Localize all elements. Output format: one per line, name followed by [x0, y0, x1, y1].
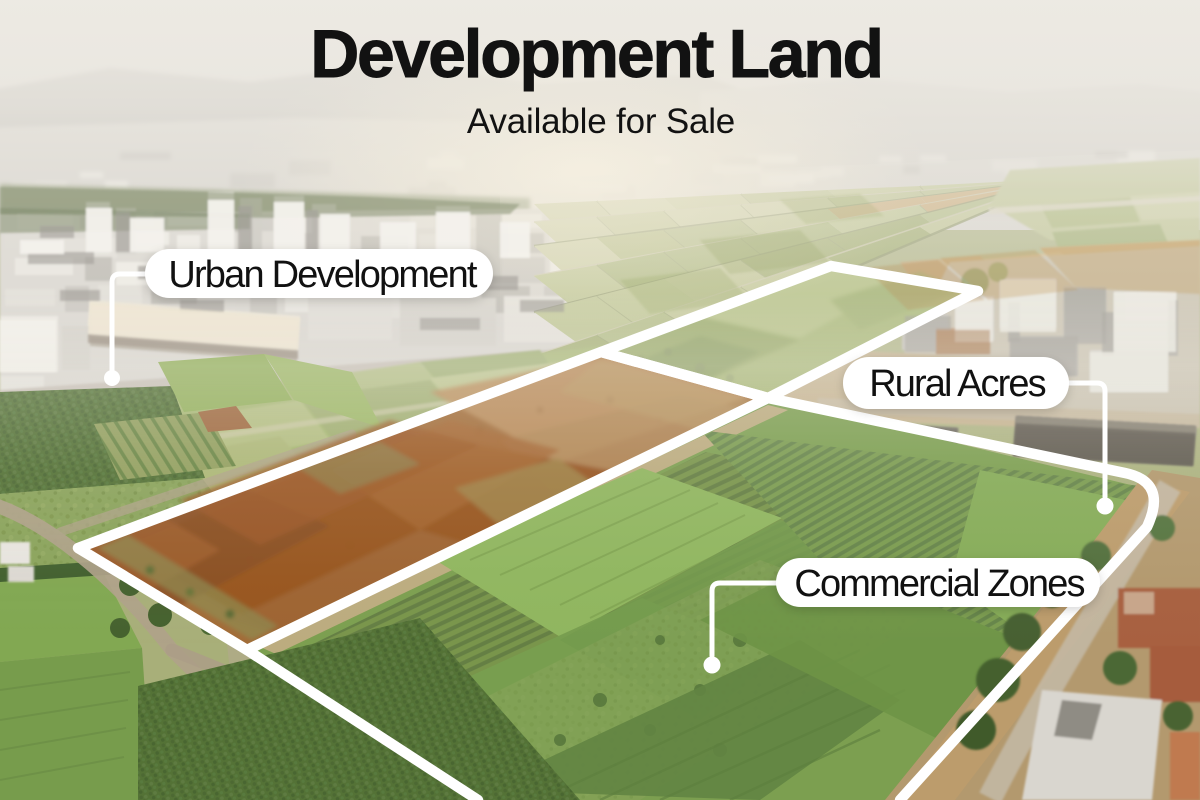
svg-text:Rural Acres: Rural Acres: [869, 363, 1045, 405]
svg-text:Development Land: Development Land: [310, 16, 882, 92]
svg-text:Urban Development: Urban Development: [168, 254, 478, 296]
svg-text:Commercial Zones: Commercial Zones: [794, 563, 1084, 605]
svg-text:Available for Sale: Available for Sale: [467, 102, 735, 141]
